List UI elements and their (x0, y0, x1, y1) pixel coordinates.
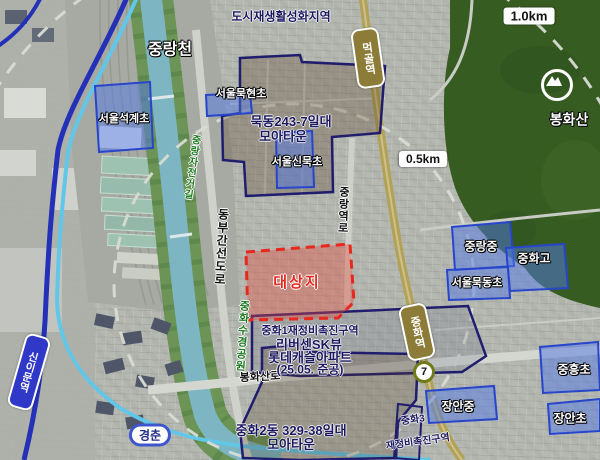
mukdong-moatown-line2: 모아타운 (259, 130, 307, 144)
satellite-map: 중랑천 봉화산 1.0km 0.5km 서울석계초 서울묵현초 서울신묵초 중랑… (0, 0, 600, 460)
school-label-mukdong: 서울묵동초 (452, 278, 503, 290)
regen-note-label: 도시재생활성화지역 (231, 11, 330, 24)
school-label-junghwa-high: 중화고 (517, 253, 550, 266)
mukdong-moatown-line1: 묵동243-7일대 (250, 115, 331, 129)
mountain-icon (541, 69, 573, 101)
school-label-mukhyeon: 서울묵현초 (216, 89, 267, 101)
school-label-sinmuk: 서울신묵초 (272, 157, 323, 169)
map-base-art (0, 0, 600, 460)
road-label-bonghwasan: 봉화산로 (239, 371, 280, 385)
site-label: 대상지 (273, 275, 320, 291)
school-label-seokgye: 서울석계초 (99, 114, 150, 126)
junghwa2-moatown-line2: 모아타운 (267, 438, 315, 452)
line7-roundel: 7 (413, 361, 435, 383)
mountain-label: 봉화산 (550, 113, 589, 128)
school-label-jangan-middle: 장안중 (441, 401, 474, 414)
road-label-dongbu: 동부간선도로 (213, 208, 230, 287)
stream-label: 중랑천 (148, 43, 192, 60)
zone-junghwa3 (394, 404, 422, 460)
junghwa1-line1: 중화1재정비촉진구역 (261, 326, 358, 338)
school-label-jungheung: 중흥초 (557, 364, 590, 377)
road-label-jungnangyeok: 중랑역로 (335, 186, 348, 234)
school-label-jungnang-middle: 중랑중 (464, 241, 497, 254)
distance-500m-label: 0.5km (399, 151, 447, 167)
junghwa1-line4: (25.05. 준공) (277, 364, 344, 377)
school-label-jangan-elem: 장안초 (553, 413, 586, 426)
distance-1km-label: 1.0km (504, 8, 555, 25)
junghwa2-moatown-line1: 중화2동 329-38일대 (235, 424, 346, 438)
line-badge-gyeongchun: 경춘 (129, 424, 171, 447)
